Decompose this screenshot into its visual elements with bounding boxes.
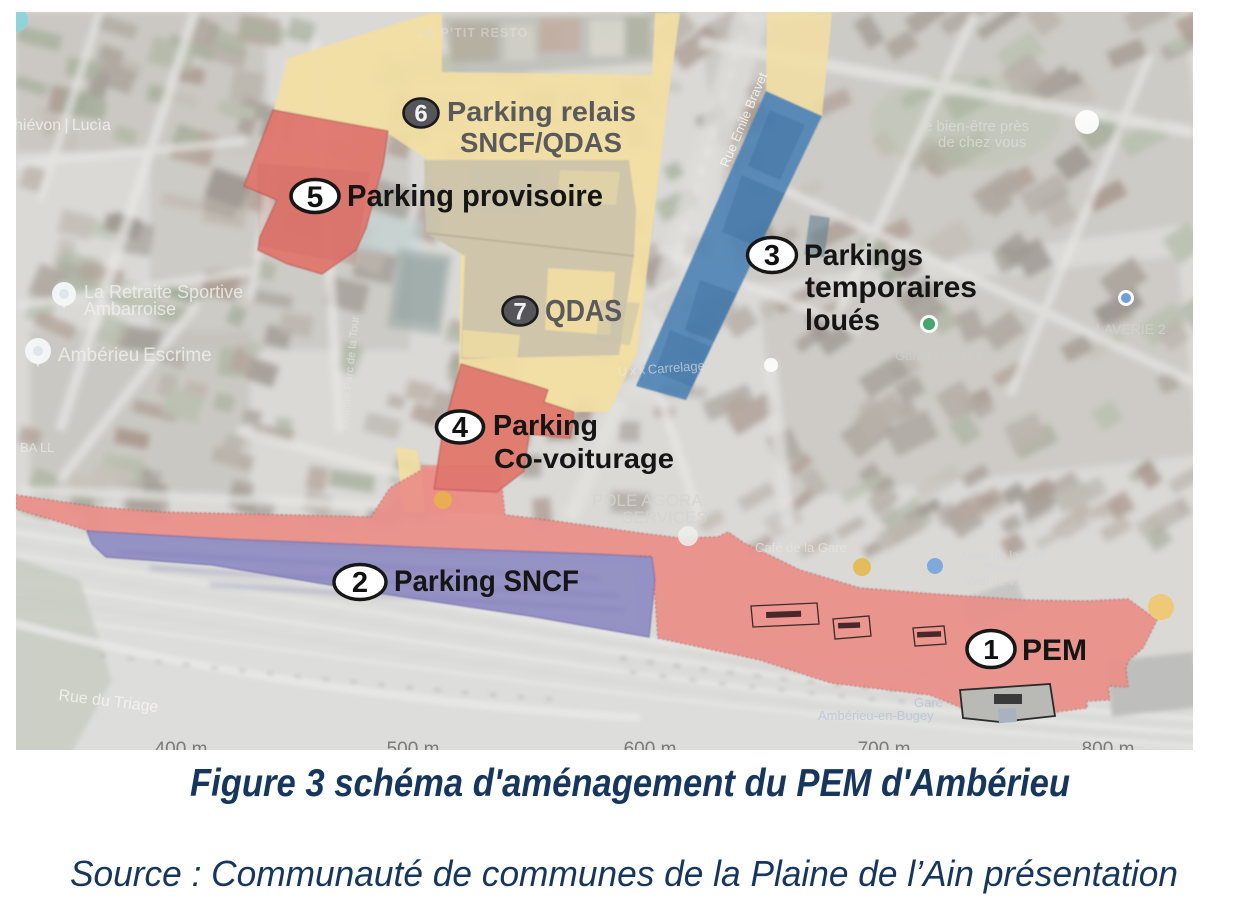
svg-text:e bien-être près: e bien-être près (924, 118, 1029, 135)
svg-text:Parking SNCF: Parking SNCF (394, 565, 579, 598)
svg-text:5: 5 (307, 181, 324, 214)
svg-text:Garon GlossFit: Garon GlossFit (895, 348, 983, 363)
svg-text:700 m: 700 m (858, 739, 911, 760)
svg-text:Figure 3 schéma d'aménagement: Figure 3 schéma d'aménagement du PEM d'A… (190, 762, 1070, 805)
svg-text:SERVICES: SERVICES (622, 508, 708, 527)
svg-text:Parking relais: Parking relais (447, 96, 636, 127)
svg-text:LE P’TIT RESTO: LE P’TIT RESTO (418, 26, 528, 40)
svg-text:4: 4 (452, 412, 468, 444)
svg-text:Ambérieu Escrime: Ambérieu Escrime (58, 345, 212, 366)
svg-text:Parking: Parking (493, 410, 598, 442)
svg-text:7: 7 (513, 299, 526, 326)
svg-text:6: 6 (414, 101, 427, 128)
svg-text:2: 2 (352, 567, 368, 599)
svg-text:Café de la Gare: Café de la Gare (755, 540, 847, 555)
svg-text:800 m: 800 m (1082, 739, 1135, 760)
svg-text:3: 3 (764, 240, 780, 272)
svg-text:Parking provisoire: Parking provisoire (347, 179, 603, 213)
svg-text:QDAS: QDAS (545, 293, 622, 328)
svg-text:temporaires: temporaires (805, 271, 977, 304)
svg-text:LAVERIE 2: LAVERIE 2 (1096, 321, 1166, 337)
svg-text:400 m: 400 m (155, 739, 208, 760)
svg-text:loués: loués (805, 304, 880, 337)
svg-text:“Sellier”: “Sellier” (984, 561, 1025, 575)
svg-text:1: 1 (983, 634, 999, 665)
svg-text:Co-voiturage: Co-voiturage (494, 443, 674, 474)
svg-text:500 m: 500 m (387, 739, 440, 760)
svg-text:Julien de la gare: Julien de la gare (958, 548, 1046, 562)
svg-text:Source : Communauté de commune: Source : Communauté de communes de la Pl… (70, 853, 1178, 894)
svg-text:600 m: 600 m (624, 739, 677, 760)
svg-text:hiévon | Lucìa: hiévon | Lucìa (14, 117, 111, 134)
svg-text:BA LL: BA LL (20, 440, 54, 455)
svg-text:Parkings: Parkings (804, 239, 923, 272)
svg-text:Ambérieu-en-Bugey: Ambérieu-en-Bugey (818, 708, 934, 723)
svg-text:SNCF/QDAS: SNCF/QDAS (460, 127, 622, 158)
svg-text:PEM: PEM (1022, 634, 1087, 667)
svg-text:Ambarroise: Ambarroise (84, 299, 176, 319)
svg-text:hôtel de v...: hôtel de v... (963, 574, 1024, 588)
svg-text:de chez vous: de chez vous (938, 134, 1026, 151)
